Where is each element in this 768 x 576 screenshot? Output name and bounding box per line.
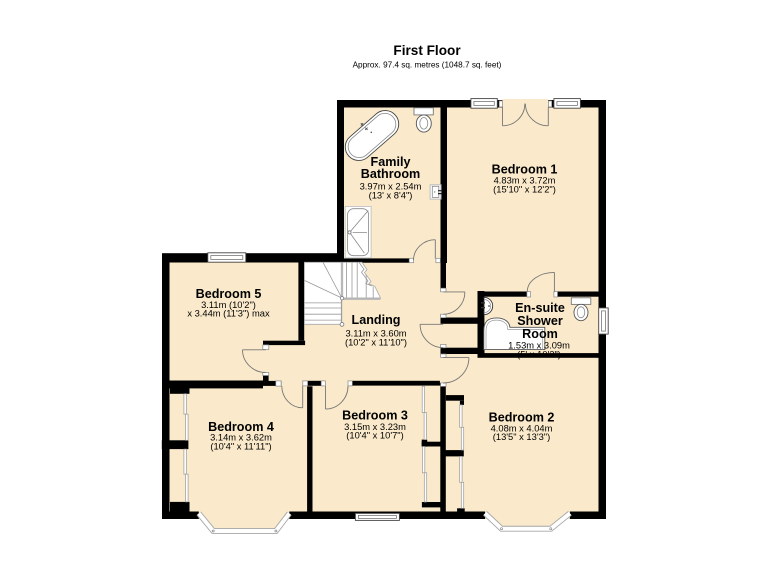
svg-text:Bedroom 3: Bedroom 3 <box>342 408 408 422</box>
svg-text:Bedroom 5: Bedroom 5 <box>196 287 262 301</box>
svg-text:(13'5" x 13'3"): (13'5" x 13'3") <box>493 432 550 442</box>
svg-text:Bedroom 2: Bedroom 2 <box>489 410 555 424</box>
svg-text:First Floor: First Floor <box>393 43 461 58</box>
svg-text:Bathroom: Bathroom <box>361 167 420 181</box>
svg-text:(10'4" x 10'7"): (10'4" x 10'7") <box>346 431 403 441</box>
svg-text:En-suite: En-suite <box>515 301 565 315</box>
svg-text:(10'4" x 11'11"): (10'4" x 11'11") <box>210 441 271 451</box>
svg-text:(10'2" x 11'10"): (10'2" x 11'10") <box>345 338 407 348</box>
svg-text:(15'10" x 12'2"): (15'10" x 12'2") <box>493 184 556 194</box>
svg-text:1.53m x 3.09m: 1.53m x 3.09m <box>508 340 570 350</box>
svg-text:Landing: Landing <box>352 313 401 327</box>
svg-text:Room: Room <box>522 327 558 341</box>
svg-text:Bedroom 1: Bedroom 1 <box>492 163 558 177</box>
svg-text:(13' x 8'4"): (13' x 8'4") <box>369 191 413 201</box>
svg-text:x 3.44m (11'3") max: x 3.44m (11'3") max <box>187 309 270 319</box>
svg-text:Approx. 97.4 sq. metres (1048.: Approx. 97.4 sq. metres (1048.7 sq. feet… <box>353 60 502 69</box>
